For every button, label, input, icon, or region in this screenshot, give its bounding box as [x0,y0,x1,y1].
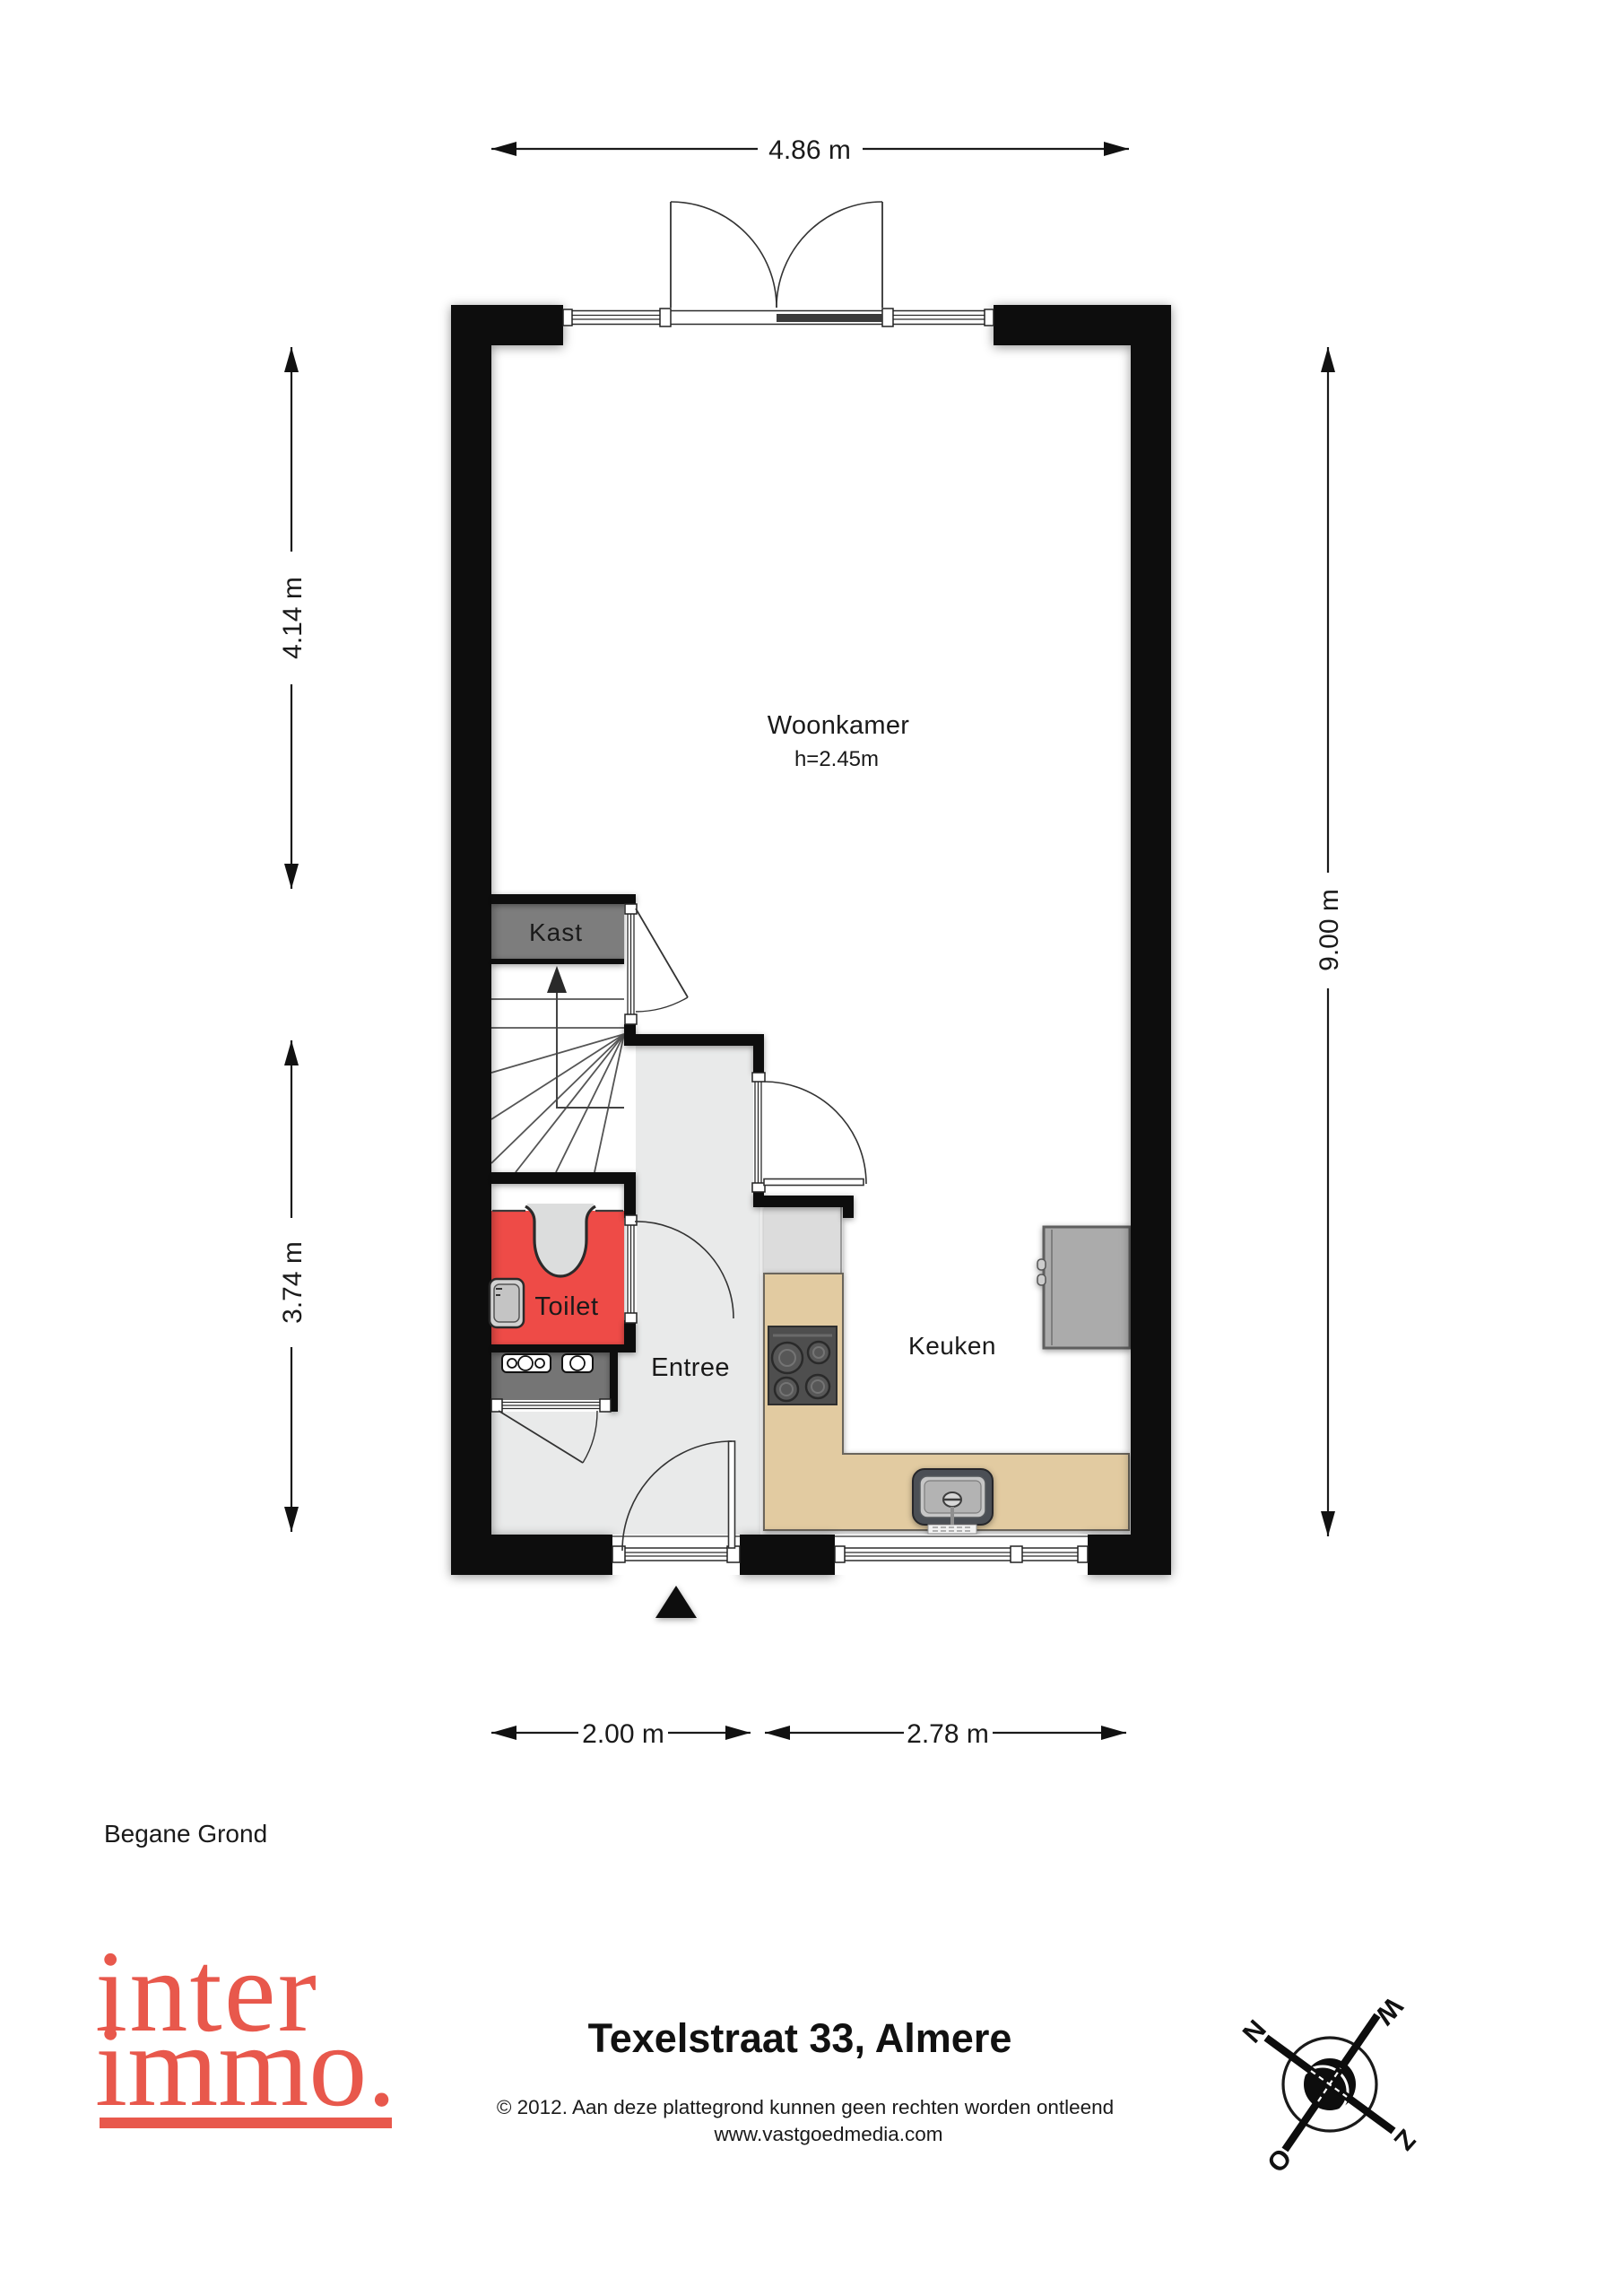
svg-text:4.86 m: 4.86 m [768,135,851,165]
svg-text:4.14 m: 4.14 m [278,577,308,659]
svg-text:Begane Grond: Begane Grond [104,1820,267,1848]
svg-text:h=2.45m: h=2.45m [794,747,879,771]
svg-text:O: O [1262,2144,1298,2179]
svg-text:N: N [1237,2014,1272,2048]
svg-text:Toilet: Toilet [534,1292,598,1321]
svg-text:immo.: immo. [95,2002,396,2131]
svg-text:www.vastgoedmedia.com: www.vastgoedmedia.com [713,2123,942,2145]
svg-text:2.78 m: 2.78 m [907,1719,989,1749]
svg-text:© 2012. Aan deze plattegrond k: © 2012. Aan deze plattegrond kunnen geen… [497,2096,1114,2118]
svg-text:3.74 m: 3.74 m [278,1241,308,1324]
svg-text:9.00 m: 9.00 m [1315,889,1344,971]
svg-text:2.00 m: 2.00 m [582,1719,664,1749]
svg-text:Woonkamer: Woonkamer [768,711,910,740]
svg-text:Texelstraat 33, Almere: Texelstraat 33, Almere [588,2015,1012,2061]
svg-text:Keuken: Keuken [908,1332,996,1360]
svg-text:Kast: Kast [529,918,583,946]
svg-text:Entree: Entree [651,1353,730,1382]
